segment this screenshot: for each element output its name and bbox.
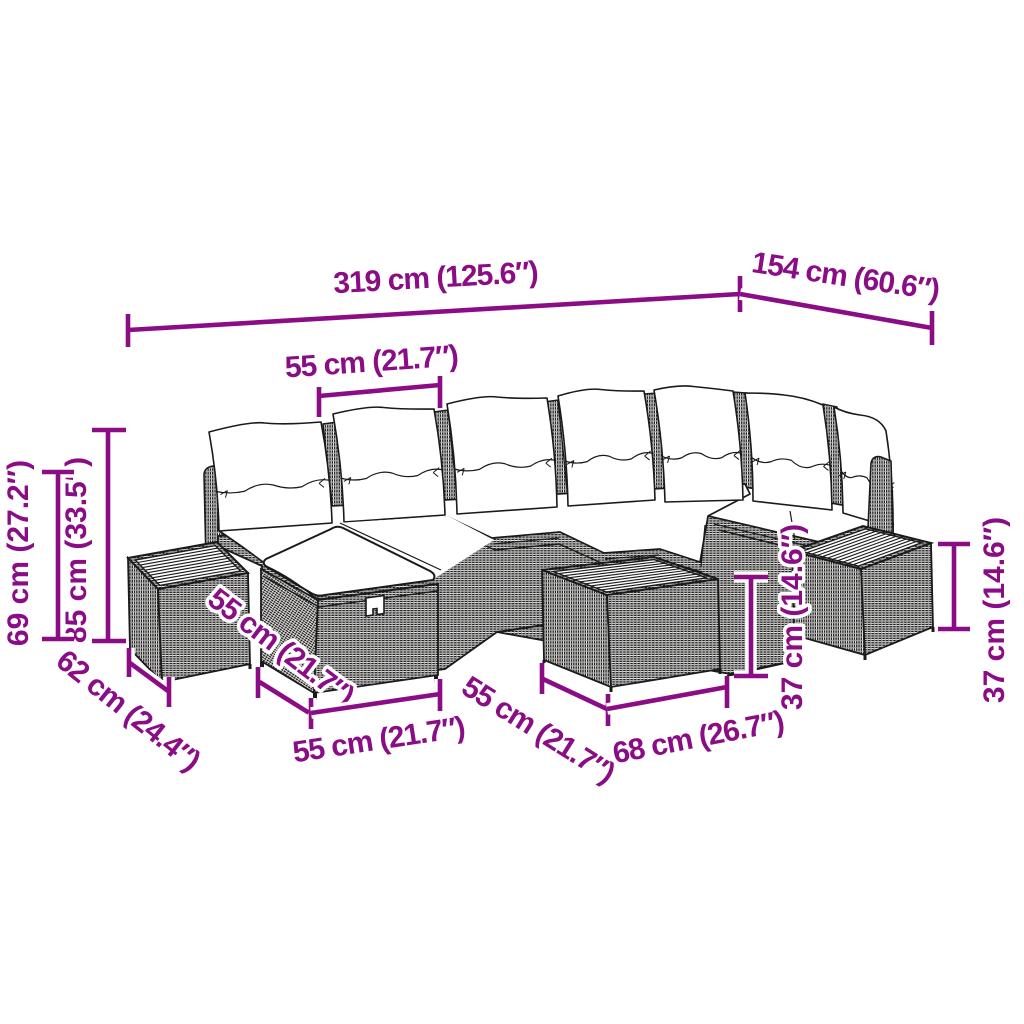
svg-text:37 cm (14.6″): 37 cm (14.6″) xyxy=(776,524,809,710)
svg-text:85 cm (33.5″): 85 cm (33.5″) xyxy=(60,457,93,643)
svg-text:55 cm (21.7″): 55 cm (21.7″) xyxy=(291,711,467,770)
svg-text:69 cm (27.2″): 69 cm (27.2″) xyxy=(2,460,35,646)
svg-text:37 cm (14.6″): 37 cm (14.6″) xyxy=(978,517,1011,703)
svg-text:55 cm (21.7″): 55 cm (21.7″) xyxy=(284,340,459,385)
svg-text:319 cm (125.6″): 319 cm (125.6″) xyxy=(332,256,538,300)
svg-text:68 cm (26.7″): 68 cm (26.7″) xyxy=(610,705,786,770)
